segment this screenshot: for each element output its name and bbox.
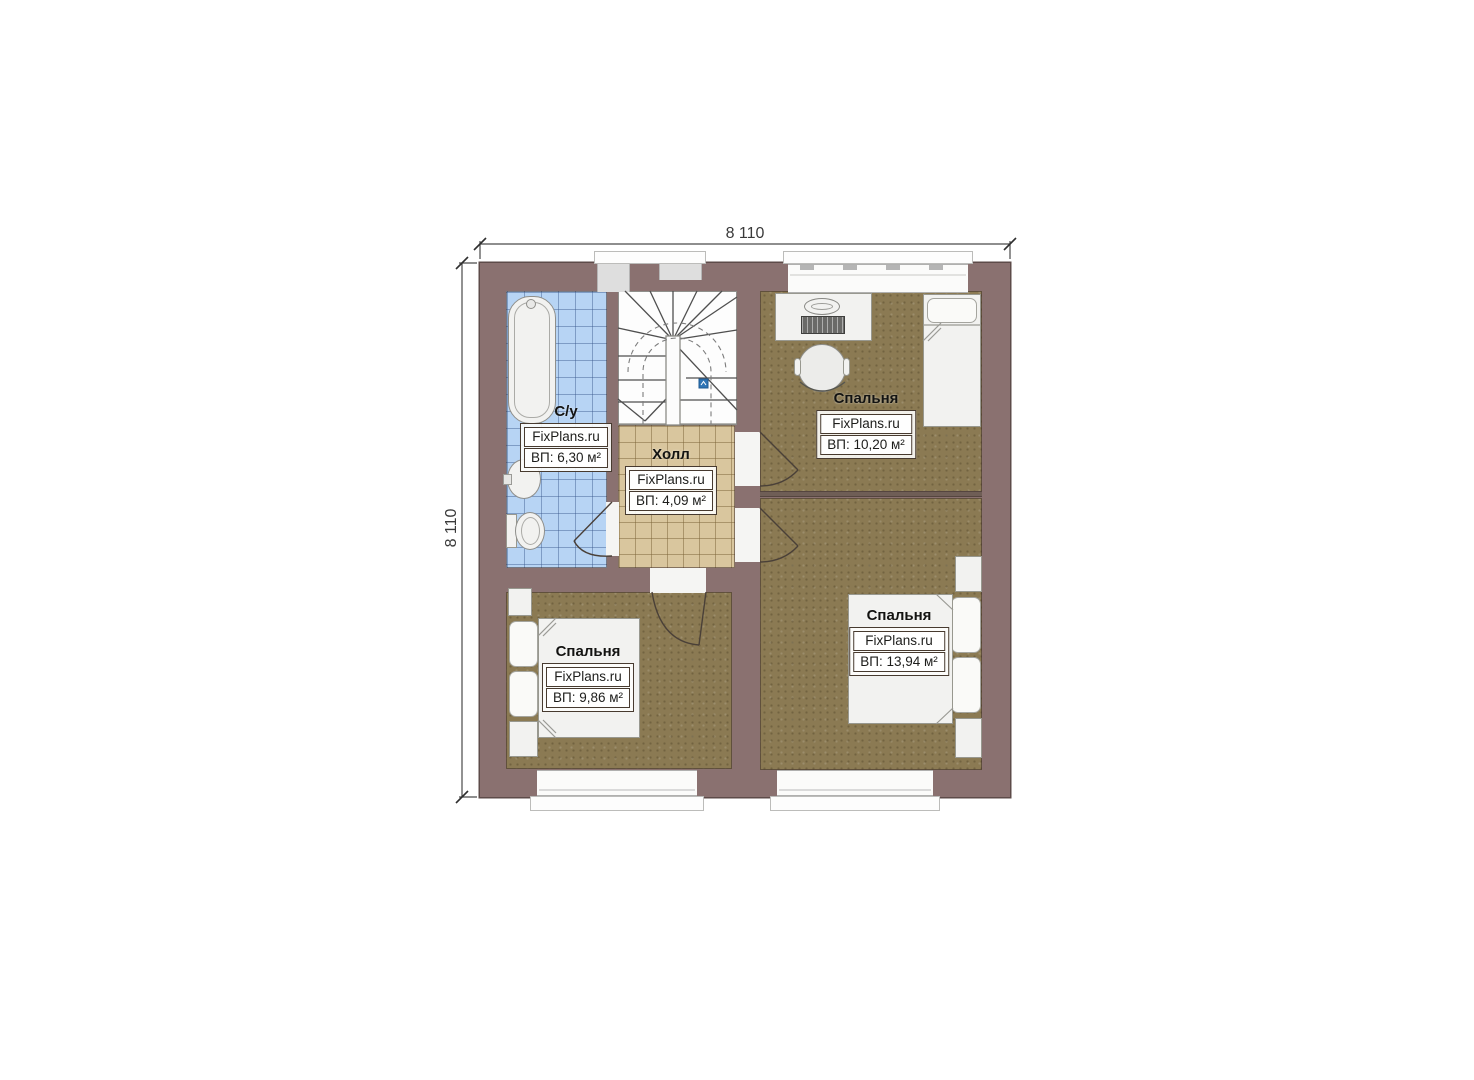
floor-plan-page: 8 110 8 110 — [0, 0, 1474, 1080]
window-sill-top-right — [783, 251, 973, 264]
desk-lamp — [804, 298, 840, 315]
room-info-box: FixPlans.ru ВП: 9,86 м² — [542, 663, 634, 712]
room-area-text: ВП: 6,30 м² — [524, 448, 608, 468]
window-sill-top-small — [594, 251, 706, 264]
nightstand — [955, 718, 982, 758]
single-bed-pillow — [927, 298, 977, 323]
room-area-text: ВП: 9,86 м² — [546, 688, 630, 708]
watermark-text: FixPlans.ru — [524, 427, 608, 447]
bathtub-inner-outline — [514, 302, 550, 418]
window-top-stairs-a — [597, 264, 630, 292]
bedroom-bottom-left-door-opening — [650, 568, 706, 593]
room-info-box: FixPlans.ru ВП: 4,09 м² — [625, 466, 717, 515]
room-label-bedroom-top-right: Спальня FixPlans.ru ВП: 10,20 м² — [816, 390, 916, 459]
office-chair — [798, 344, 846, 392]
watermark-text: FixPlans.ru — [546, 667, 630, 687]
window-top-stairs-b — [659, 264, 702, 280]
bedroom-bottom-right-door-opening — [735, 508, 760, 562]
bedroom-partition-wall — [760, 491, 982, 497]
dimension-left-label: 8 110 — [443, 509, 461, 548]
chair-armrest-left — [794, 358, 801, 376]
room-label-hall: Холл FixPlans.ru ВП: 4,09 м² — [625, 446, 717, 515]
pillow — [951, 597, 981, 653]
pillow — [509, 621, 538, 667]
nightstand — [508, 588, 532, 616]
window-bedroom-top-right — [788, 264, 968, 293]
room-name: Спальня — [867, 607, 932, 625]
stairs-area — [618, 291, 737, 425]
room-label-bedroom-bottom-right: Спальня FixPlans.ru ВП: 13,94 м² — [849, 607, 949, 676]
room-info-box: FixPlans.ru ВП: 10,20 м² — [816, 410, 916, 459]
room-area-text: ВП: 4,09 м² — [629, 491, 713, 511]
room-name: С/у — [554, 403, 577, 421]
window-sill-bottom-left — [530, 796, 704, 811]
sink-tap — [503, 474, 512, 485]
watermark-text: FixPlans.ru — [820, 414, 912, 434]
nightstand — [509, 721, 538, 757]
room-name: Спальня — [556, 643, 621, 661]
toilet-seat-outline — [521, 517, 540, 545]
desk-lamp-inner — [811, 303, 833, 310]
bathtub-faucet — [526, 299, 536, 309]
watermark-text: FixPlans.ru — [629, 470, 713, 490]
window-sill-bottom-right — [770, 796, 940, 811]
chair-armrest-right — [843, 358, 850, 376]
room-label-bedroom-bottom-left: Спальня FixPlans.ru ВП: 9,86 м² — [542, 643, 634, 712]
room-area-text: ВП: 10,20 м² — [820, 435, 912, 455]
window-bedroom-bottom-right — [777, 770, 933, 796]
room-name: Спальня — [834, 390, 899, 408]
room-area-text: ВП: 13,94 м² — [853, 652, 945, 672]
pillow — [951, 657, 981, 713]
room-info-box: FixPlans.ru ВП: 13,94 м² — [849, 627, 949, 676]
nightstand — [955, 556, 982, 592]
room-info-box: FixPlans.ru ВП: 6,30 м² — [520, 423, 612, 472]
dimension-top-label: 8 110 — [726, 225, 765, 243]
bedroom-top-right-door-opening — [735, 432, 760, 486]
keyboard — [801, 316, 845, 334]
watermark-text: FixPlans.ru — [853, 631, 945, 651]
room-label-bathroom: С/у FixPlans.ru ВП: 6,30 м² — [520, 403, 612, 472]
bathroom-door-opening — [606, 502, 619, 556]
room-name: Холл — [652, 446, 690, 464]
window-bedroom-bottom-left — [537, 770, 697, 796]
pillow — [509, 671, 538, 717]
toilet-bowl — [515, 512, 545, 550]
